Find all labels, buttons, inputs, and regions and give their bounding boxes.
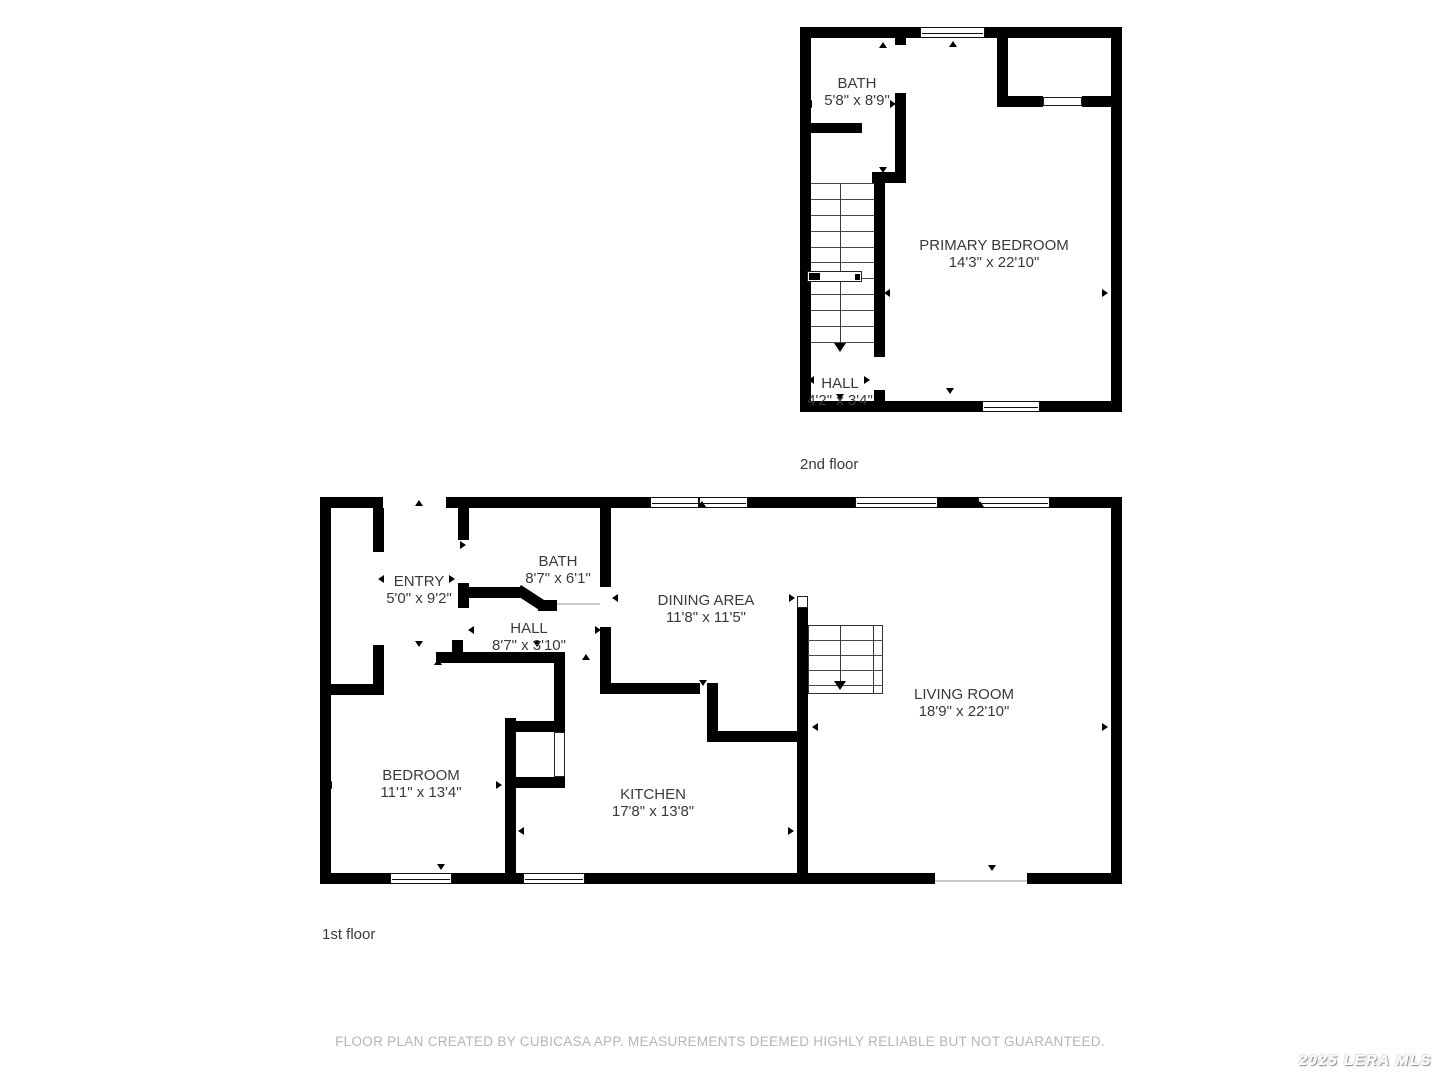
wall xyxy=(811,123,862,133)
stair-tread xyxy=(811,215,874,216)
window-pane-line xyxy=(392,879,450,880)
direction-arrow xyxy=(879,167,887,173)
direction-arrow xyxy=(415,500,423,506)
window-pane-line xyxy=(525,879,583,880)
window-pane-line xyxy=(980,503,1048,504)
direction-arrow xyxy=(415,641,423,647)
direction-arrow xyxy=(460,541,466,549)
direction-arrow xyxy=(326,781,332,789)
direction-arrow xyxy=(612,594,618,602)
room-name: HALL xyxy=(807,375,873,392)
stair-walkline xyxy=(840,184,841,344)
door-panel xyxy=(797,596,808,608)
door-panel xyxy=(554,732,565,777)
wall-diagonal xyxy=(515,585,546,611)
direction-arrow xyxy=(434,659,442,665)
wall xyxy=(1111,508,1122,873)
stair-tread xyxy=(811,199,874,200)
direction-arrow xyxy=(788,827,794,835)
room-dimensions: 4'2" x 3'4" xyxy=(807,392,873,409)
room-label-hall: HALL8'7" x 3'10" xyxy=(492,620,566,654)
room-label-bedroom: BEDROOM11'1" x 13'4" xyxy=(380,767,461,801)
room-label-bath: BATH8'7" x 6'1" xyxy=(525,553,591,587)
room-label-bath: BATH5'8" x 8'9" xyxy=(824,75,890,109)
wall xyxy=(373,508,384,552)
room-name: HALL xyxy=(492,620,566,637)
room-dimensions: 11'1" x 13'4" xyxy=(380,784,461,801)
room-name: KITCHEN xyxy=(612,786,694,803)
wall xyxy=(320,873,390,884)
stair-tread xyxy=(811,247,874,248)
room-label-living-room: LIVING ROOM18'9" x 22'10" xyxy=(914,686,1014,720)
stair-tread xyxy=(808,640,883,641)
stair-rail xyxy=(873,626,874,693)
room-name: LIVING ROOM xyxy=(914,686,1014,703)
wall xyxy=(895,38,906,45)
wall xyxy=(554,652,565,732)
room-name: BEDROOM xyxy=(380,767,461,784)
wall xyxy=(748,497,855,508)
direction-arrow xyxy=(1102,723,1108,731)
direction-arrow xyxy=(437,864,445,870)
direction-arrow xyxy=(595,626,601,634)
stair-landing-cap xyxy=(809,273,820,280)
wall xyxy=(800,27,920,38)
wall xyxy=(446,497,650,508)
direction-arrow xyxy=(806,100,812,108)
floor-caption-1st: 1st floor xyxy=(322,926,375,943)
stair-tread xyxy=(808,655,883,656)
direction-arrow xyxy=(582,654,590,660)
room-dimensions: 5'8" x 8'9" xyxy=(824,92,890,109)
room-name: DINING AREA xyxy=(658,592,755,609)
wall xyxy=(938,497,978,508)
wall xyxy=(452,640,463,652)
direction-arrow xyxy=(834,681,846,690)
wall xyxy=(554,777,565,788)
wall xyxy=(373,645,384,695)
floor-caption-2nd: 2nd floor xyxy=(800,456,858,473)
wall xyxy=(1082,96,1111,107)
direction-arrow xyxy=(378,575,384,583)
wall xyxy=(874,183,885,357)
room-label-hall: HALL4'2" x 3'4" xyxy=(807,375,873,409)
opening-line xyxy=(935,880,1027,882)
wall xyxy=(585,873,935,884)
room-name: BATH xyxy=(525,553,591,570)
stair-walkline xyxy=(840,626,841,682)
wall xyxy=(1050,497,1122,508)
room-dimensions: 17'8" x 13'8" xyxy=(612,803,694,820)
direction-arrow xyxy=(834,343,846,352)
wall xyxy=(600,508,611,587)
wall xyxy=(707,731,797,742)
mls-watermark: 2025 LERA MLS xyxy=(1299,1052,1432,1069)
wall xyxy=(320,497,383,508)
wall xyxy=(452,873,523,884)
direction-arrow xyxy=(698,501,706,507)
room-dimensions: 18'9" x 22'10" xyxy=(914,703,1014,720)
direction-arrow xyxy=(812,723,818,731)
door-panel xyxy=(1043,97,1082,106)
opening-line xyxy=(557,603,600,605)
direction-arrow xyxy=(496,781,502,789)
room-label-primary-bedroom: PRIMARY BEDROOM14'3" x 22'10" xyxy=(919,237,1068,271)
wall xyxy=(997,38,1008,105)
wall xyxy=(872,172,906,183)
stair-tread xyxy=(811,310,874,311)
stair-tread xyxy=(808,670,883,671)
stair-tread xyxy=(811,262,874,263)
direction-arrow xyxy=(518,827,524,835)
wall xyxy=(797,608,808,873)
wall xyxy=(895,93,906,177)
room-label-dining-area: DINING AREA11'8" x 11'5" xyxy=(658,592,755,626)
wall xyxy=(1027,873,1122,884)
room-dimensions: 8'7" x 6'1" xyxy=(525,570,591,587)
stair-tread xyxy=(811,294,874,295)
floor-plan-canvas: FLOOR PLAN CREATED BY CUBICASA APP. MEAS… xyxy=(0,0,1440,1080)
wall xyxy=(458,508,469,540)
stair-tread xyxy=(811,183,874,184)
stair-landing-cap xyxy=(855,274,860,280)
direction-arrow xyxy=(976,501,984,507)
direction-arrow xyxy=(468,626,474,634)
wall xyxy=(600,683,700,694)
direction-arrow xyxy=(946,388,954,394)
room-label-kitchen: KITCHEN17'8" x 13'8" xyxy=(612,786,694,820)
direction-arrow xyxy=(949,41,957,47)
room-dimensions: 11'8" x 11'5" xyxy=(658,609,755,626)
direction-arrow xyxy=(789,594,795,602)
direction-arrow xyxy=(1102,289,1108,297)
direction-arrow xyxy=(879,42,887,48)
footer-disclaimer: FLOOR PLAN CREATED BY CUBICASA APP. MEAS… xyxy=(0,1034,1440,1049)
direction-arrow xyxy=(988,865,996,871)
room-dimensions: 8'7" x 3'10" xyxy=(492,637,566,654)
room-dimensions: 14'3" x 22'10" xyxy=(919,254,1068,271)
room-name: ENTRY xyxy=(386,573,452,590)
wall xyxy=(326,684,373,695)
wall xyxy=(458,587,523,598)
room-name: PRIMARY BEDROOM xyxy=(919,237,1068,254)
direction-arrow xyxy=(890,100,896,108)
wall xyxy=(1040,401,1122,412)
stair-tread xyxy=(811,231,874,232)
wall xyxy=(874,390,885,401)
window-pane-line xyxy=(984,407,1038,408)
wall xyxy=(505,718,516,873)
wall xyxy=(997,96,1043,107)
stair-tread xyxy=(811,326,874,327)
wall xyxy=(800,38,811,401)
wall xyxy=(505,721,565,732)
direction-arrow xyxy=(884,289,890,297)
room-dimensions: 5'0" x 9'2" xyxy=(386,590,452,607)
wall xyxy=(985,27,1122,38)
room-name: BATH xyxy=(824,75,890,92)
wall xyxy=(1111,38,1122,401)
window-pane-line xyxy=(922,33,983,34)
room-label-entry: ENTRY5'0" x 9'2" xyxy=(386,573,452,607)
window-pane-line xyxy=(857,503,936,504)
direction-arrow xyxy=(699,680,707,686)
